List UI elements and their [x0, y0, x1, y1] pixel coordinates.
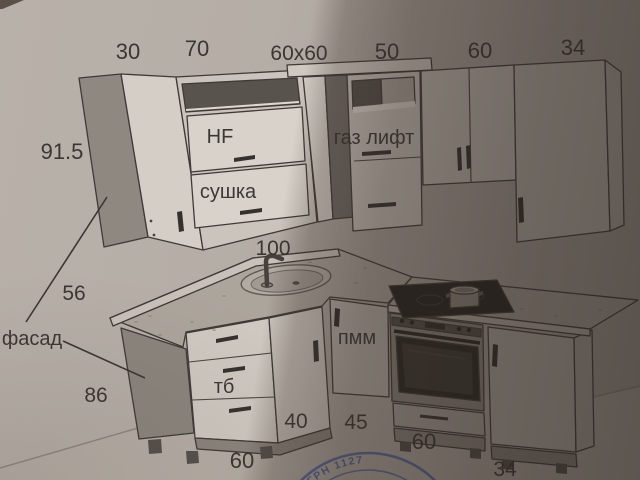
- dim-label-91-5: 91.5: [41, 139, 84, 164]
- niche-dark: [352, 79, 382, 109]
- dim-label-60-wall: 60: [468, 38, 492, 63]
- end-cabinet-handle: [492, 344, 498, 367]
- pot: [446, 286, 483, 308]
- wall-cabinet-70: [176, 70, 317, 250]
- label-pmm: пмм: [338, 327, 376, 349]
- pmm-handle: [334, 308, 340, 327]
- dim-label-60-base: 60: [230, 448, 254, 473]
- dim-label-86: 86: [84, 384, 107, 407]
- dim-label-34-wall: 34: [561, 35, 585, 60]
- dim-label-34-base: 34: [493, 458, 517, 480]
- base-cabinet-tb: [121, 318, 278, 443]
- photo-of-kitchen-drawing: 30 70 60x60 50 60 34 91.5 HF сушка газ л…: [0, 0, 640, 480]
- oven: [390, 313, 485, 451]
- label-tb: тб: [214, 376, 235, 398]
- kitchen-elevation-drawing: 30 70 60x60 50 60 34 91.5 HF сушка газ л…: [0, 0, 640, 480]
- wall-34-handle: [518, 197, 524, 223]
- dim-label-100: 100: [255, 237, 290, 260]
- dim-label-40: 40: [284, 410, 307, 433]
- door-hf: [187, 107, 305, 172]
- label-hf: HF: [207, 126, 234, 148]
- label-facade: фасад: [2, 328, 63, 350]
- wall-cabinet-34: [514, 60, 624, 242]
- dim-label-60-oven: 60: [412, 429, 436, 454]
- dim-label-50: 50: [375, 39, 399, 64]
- label-sushka: сушка: [200, 181, 257, 203]
- wall-cabinet-60: [421, 65, 516, 185]
- dim-label-70: 70: [185, 36, 209, 61]
- dim-label-45: 45: [344, 411, 367, 434]
- dim-label-56: 56: [62, 282, 85, 305]
- end-cabinet-gable: [574, 330, 594, 452]
- sink-door-handle: [313, 340, 319, 362]
- wall-cabinet-50-gazlift: [347, 71, 422, 231]
- dim-label-60x60: 60x60: [270, 42, 327, 65]
- end-cabinet-door: [488, 327, 576, 452]
- sink-drain: [293, 281, 300, 285]
- dim-label-30: 30: [116, 39, 140, 64]
- label-gazlift: газ лифт: [334, 127, 415, 149]
